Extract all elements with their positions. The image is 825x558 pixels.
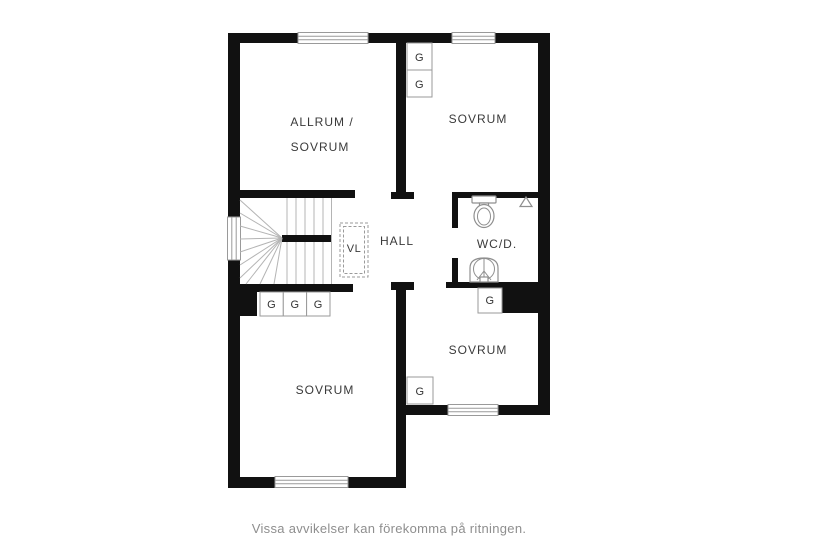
closet-label: G: [314, 299, 323, 311]
room-label-allrum-line1: ALLRUM /: [290, 115, 353, 129]
wall-left-upper: [228, 33, 240, 217]
stair-winder-treads: [240, 200, 282, 284]
window-top-right: [452, 33, 495, 44]
toilet-icon: [472, 196, 496, 228]
wall-wc-left-upper: [452, 198, 458, 228]
closet-wc: G: [478, 288, 502, 313]
wall-right: [538, 33, 550, 415]
closet-label: G: [415, 79, 424, 91]
room-label-hall: HALL: [380, 234, 414, 248]
window-top-left: [298, 33, 368, 44]
window-left-stair: [228, 217, 241, 260]
room-label-allrum-line2: SOVRUM: [291, 140, 350, 154]
room-label-sovrum-se: SOVRUM: [449, 343, 508, 357]
wall-bottom-se-left: [406, 405, 448, 415]
window-bottom-se: [448, 405, 498, 416]
stair-treads-lower-run: [287, 242, 323, 284]
closet-ne-bottom: G: [407, 70, 432, 97]
shower-icon: [520, 197, 532, 207]
closet-ne-top: G: [407, 43, 432, 70]
sink-icon: [470, 258, 498, 282]
plan-caption: Vissa avvikelser kan förekomma på ritnin…: [0, 521, 778, 536]
closet-sw-3: G: [307, 292, 330, 316]
wall-divider-south: [396, 282, 406, 488]
wall-top-middle: [368, 33, 452, 43]
closet-se: G: [407, 377, 433, 404]
closet-label: G: [485, 295, 494, 307]
window-bottom-sw: [275, 477, 348, 488]
exterior-walls: [228, 33, 550, 488]
closet-sw-2: G: [283, 292, 306, 316]
closet-sw-1: G: [260, 292, 283, 316]
floor-plan-page: VL G G G G G G G: [0, 0, 825, 558]
wall-tstub-north: [391, 192, 414, 199]
stair-treads-upper-run: [287, 198, 323, 235]
wall-bottom-se-right: [498, 405, 550, 415]
closet-label: G: [415, 386, 424, 398]
vl-label: VL: [347, 243, 361, 255]
closet-label: G: [267, 299, 276, 311]
wall-stairwell-bottom: [240, 284, 353, 292]
room-label-sovrum-sw: SOVRUM: [296, 383, 355, 397]
wall-divider-north: [396, 43, 406, 192]
closet-label: G: [290, 299, 299, 311]
vl-unit: VL: [340, 223, 368, 277]
floor-plan: VL G G G G G G G: [0, 0, 825, 510]
closet-label: G: [415, 52, 424, 64]
room-label-wc: WC/D.: [477, 237, 517, 251]
shaft-block: [502, 287, 538, 313]
stair-center-wall: [282, 235, 332, 242]
wall-bottom-sw-left: [228, 477, 275, 488]
room-label-sovrum-ne: SOVRUM: [449, 112, 508, 126]
wall-stairwell-top: [240, 190, 355, 198]
